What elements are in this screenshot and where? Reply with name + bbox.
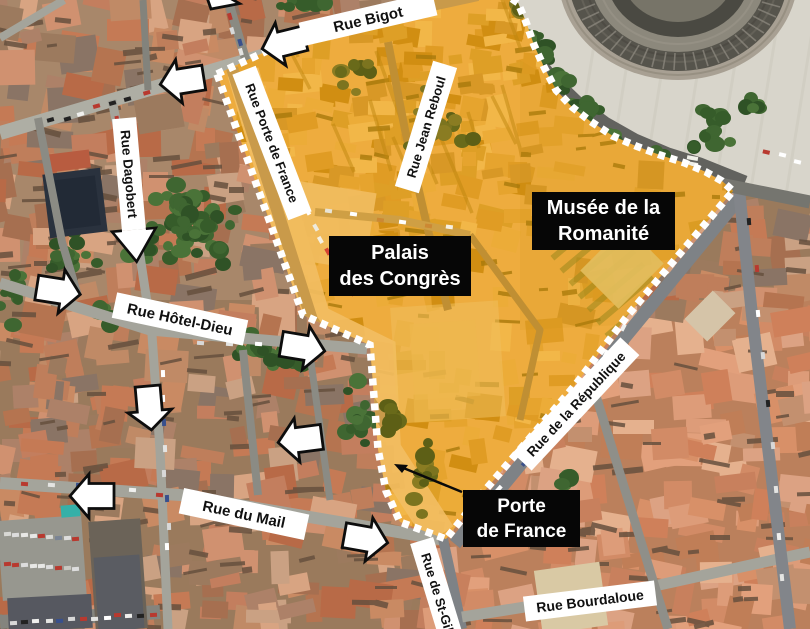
svg-text:Romanité: Romanité bbox=[558, 223, 649, 245]
svg-text:des Congrès: des Congrès bbox=[339, 268, 460, 290]
svg-text:Musée de la: Musée de la bbox=[547, 197, 661, 219]
svg-text:de France: de France bbox=[477, 521, 567, 542]
svg-text:Palais: Palais bbox=[371, 242, 429, 264]
svg-text:Porte: Porte bbox=[497, 496, 546, 517]
